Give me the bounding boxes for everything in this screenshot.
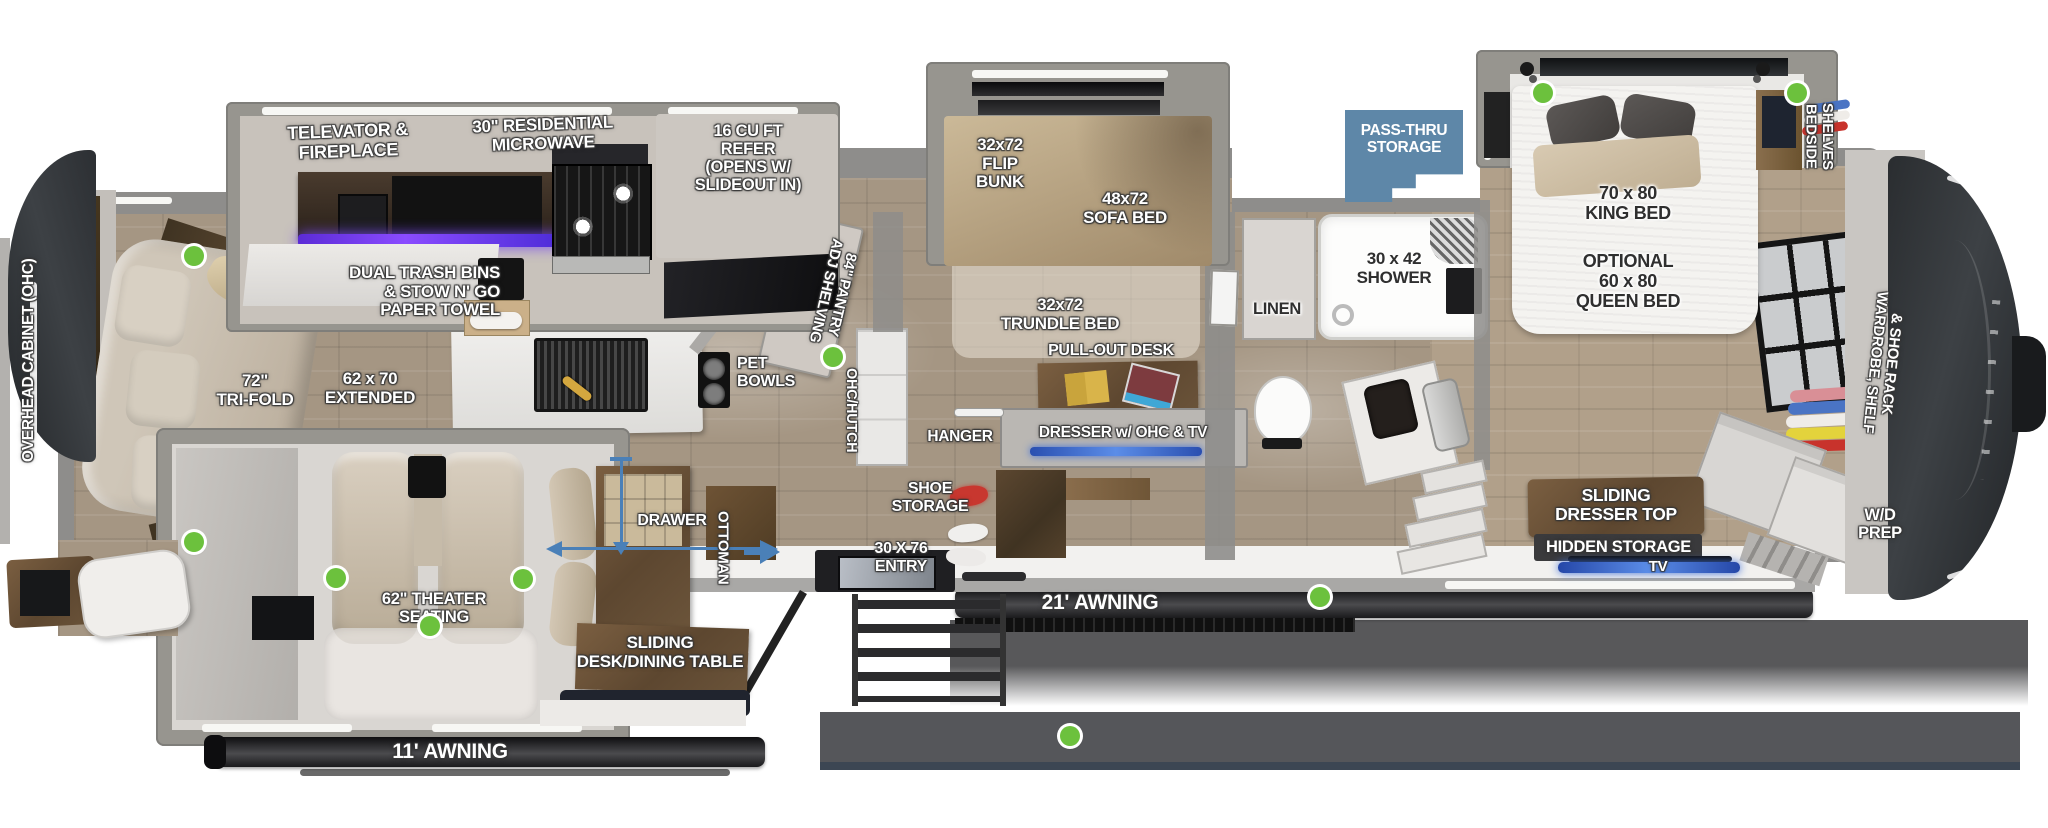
feature-marker-dot[interactable] [1310,587,1330,607]
label-pull-out-desk: PULL-OUT DESK [1036,342,1186,360]
bedroom-vent [1540,58,1788,76]
label-tri-fold: 72" TRI-FOLD [205,372,305,409]
sofa-cushion [124,349,202,432]
toilet-hinge [1262,438,1302,449]
awning-shadow-line [300,769,730,776]
wall-sconce [1756,62,1770,76]
label-shoe-storage: SHOE STORAGE [880,480,980,515]
label-awning-21: 21' AWNING [980,591,1220,614]
label-king-bed: 70 x 80 KING BED [1570,184,1686,224]
drawer-arrow-cap [610,457,632,461]
label-drawer: DRAWER [630,512,714,530]
island-sink [534,338,648,412]
wall-highlight [972,70,1168,78]
awning-21ft-serration [955,618,1355,632]
feature-marker-dot[interactable] [1060,726,1080,746]
label-sliding-table: SLIDING DESK/DINING TABLE [568,634,752,671]
notebook [1064,370,1109,406]
wall-window [1209,270,1239,327]
label-extended: 62 x 70 EXTENDED [315,370,425,407]
label-linen: LINEN [1244,300,1310,318]
label-tv: TV [1638,559,1678,576]
toilet [1254,376,1312,444]
end-table-top [20,570,70,616]
feature-marker-dot[interactable] [420,616,440,636]
basement-edge [820,762,2020,770]
awning-end-cap [204,735,226,769]
slide-tv [252,596,314,640]
sofa-cushion [112,263,193,349]
label-pass-thru: PASS-THRU STORAGE [1348,122,1460,156]
label-queen-bed: OPTIONAL 60 x 80 QUEEN BED [1566,252,1690,311]
feature-marker-dot[interactable] [326,568,346,588]
label-pet-bowls: PET BOWLS [737,355,817,390]
slide-floor-strip [540,700,746,726]
pet-bowl [703,383,725,405]
label-televator-fireplace: TELEVATOR & FIREPLACE [237,118,458,165]
drawer-arrow-line [620,460,623,542]
interior-wall [873,212,903,332]
shower-drain [1332,304,1354,326]
feature-marker-dot[interactable] [513,569,533,589]
bedside-tv [1762,96,1796,148]
feature-marker-dot[interactable] [1533,83,1553,103]
label-trash-bins: DUAL TRASH BINS & STOW N' GO PAPER TOWEL [310,264,500,320]
televator-tv [392,176,542,234]
basement-storage-skirt [820,712,2020,764]
label-trundle-bed: 32x72 TRUNDLE BED [988,296,1132,333]
entry-steps [858,600,1000,702]
body-shadow-fade [950,666,2028,706]
label-ottoman: OTTOMAN [714,496,740,600]
label-flip-bunk: 32x72 FLIP BUNK [952,136,1048,192]
linen-closet [1242,218,1316,340]
hanger-rod [954,408,1004,417]
bunk-vent [972,82,1164,96]
label-entry: 30 X 76 ENTRY [856,540,946,575]
stove-drawer [552,256,650,274]
rv-floorplan: TELEVATOR & FIREPLACE 30" RESIDENTIAL MI… [0,0,2048,828]
cooktop-stove [552,164,652,260]
label-awning-11: 11' AWNING [330,740,570,763]
label-dresser: DRESSER w/ OHC & TV [1028,424,1218,441]
console-tray [408,456,446,498]
slide-travel-arrow-right-icon [762,541,778,557]
feature-marker-dot[interactable] [823,347,843,367]
bunk-vent [978,100,1160,115]
wall-highlight [1445,581,1795,589]
label-sofa-bed: 48x72 SOFA BED [1070,190,1180,227]
coffee-table [75,547,193,641]
interior-wall [1474,200,1490,470]
pet-bowl [703,358,725,380]
label-refer: 16 CU FT REFER (OPENS W/ SLIDEOUT IN) [658,122,838,195]
label-bedside-shelves: BEDSIDE SHELVES [1802,74,1854,198]
label-shower: 30 x 42 SHOWER [1342,250,1446,287]
label-hidden-storage: HIDDEN STORAGE [1536,538,1701,556]
label-sliding-dresser-top: SLIDING DRESSER TOP [1530,486,1702,525]
hitch-pin-box [2012,336,2046,432]
grab-handle[interactable] [962,572,1026,581]
feature-marker-dot[interactable] [184,246,204,266]
label-wd-prep: W/D PREP [1844,506,1916,542]
dresser-led-strip [1030,447,1202,456]
feature-marker-dot[interactable] [184,532,204,552]
slide-end-wall [176,448,298,720]
feature-marker-dot[interactable] [1787,83,1807,103]
desk-drawer-unit [604,474,682,546]
wall-highlight [202,724,352,732]
label-overhead-cabinet: OVERHEAD CABINET (OHC) [20,248,52,472]
wall-sconce [1520,62,1534,76]
slide-travel-arrow-left-icon [546,541,562,557]
theater-footrest [324,628,538,720]
shoe-cabinet [996,470,1066,558]
label-hanger: HANGER [920,428,1000,445]
shoe-shelf [1066,478,1150,500]
bedroom-tv-panel [1484,92,1510,158]
label-ohc-hutch: OHC/HUTCH [842,356,866,464]
label-microwave: 30" RESIDENTIAL MICROWAVE [467,113,618,156]
